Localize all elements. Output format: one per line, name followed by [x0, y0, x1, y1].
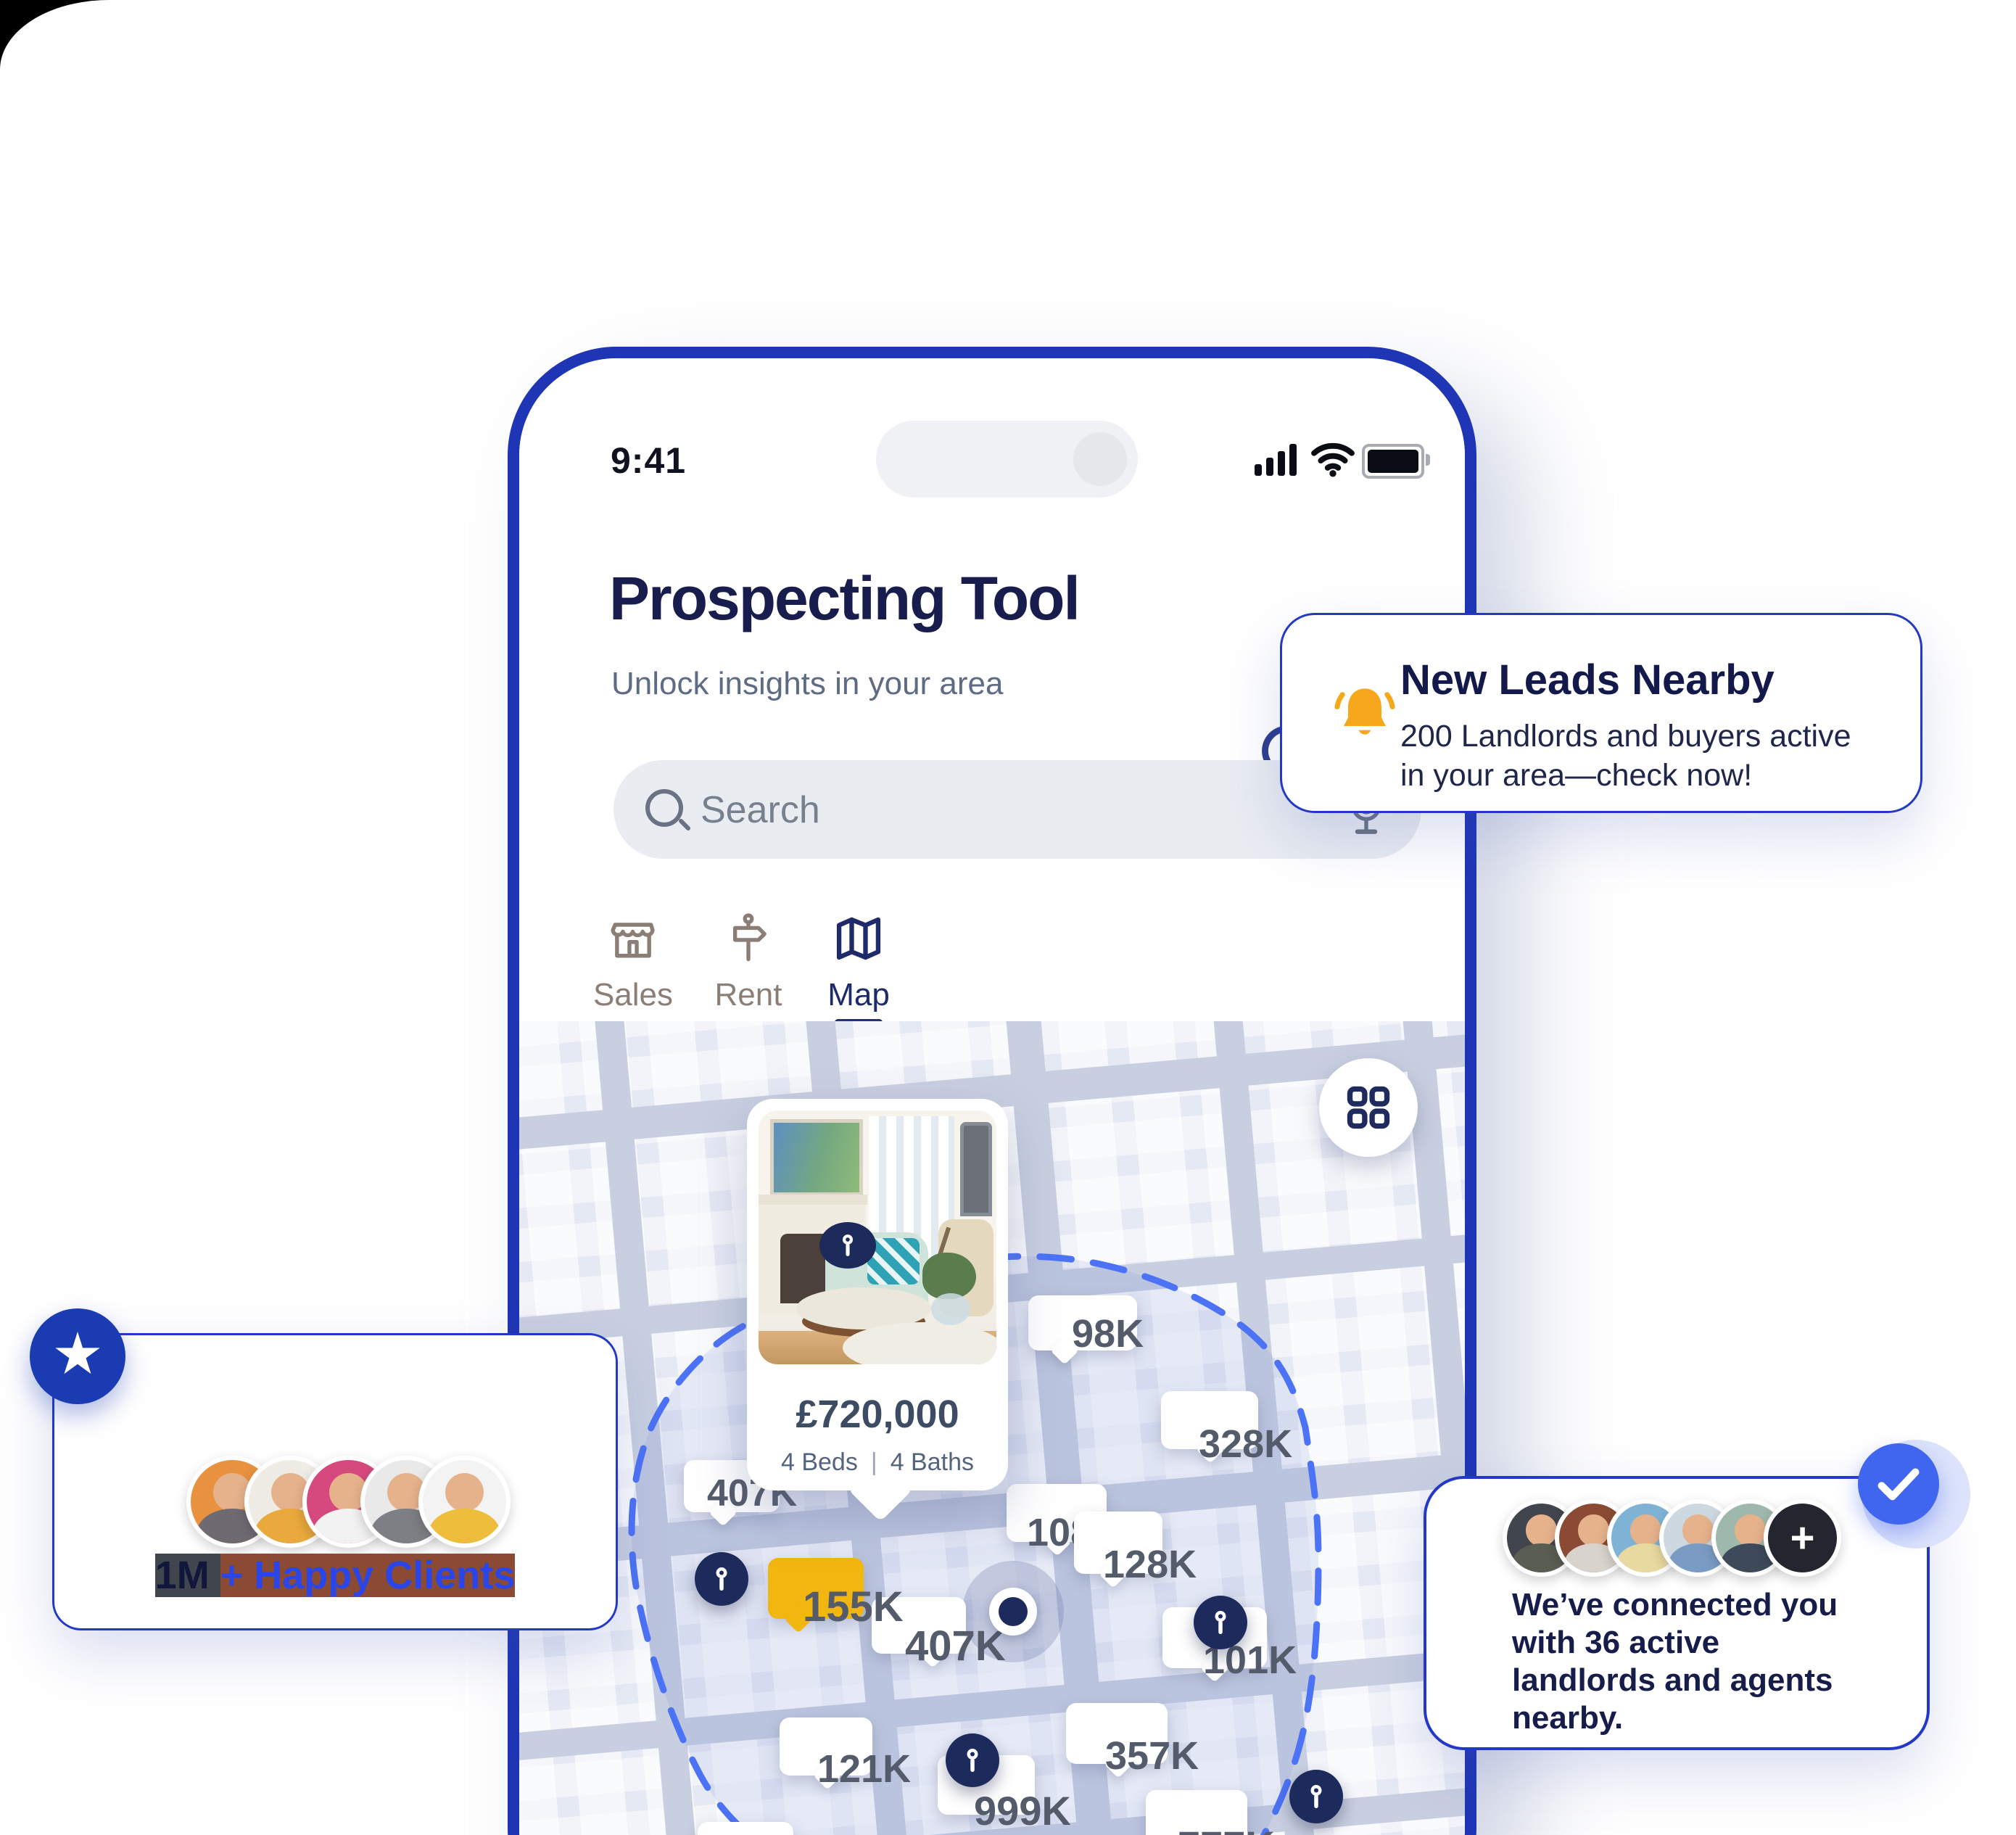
status-time: 9:41	[611, 440, 686, 482]
new-leads-notification[interactable]: New Leads Nearby 200 Landlords and buyer…	[1280, 613, 1922, 813]
connected-card: + We’ve connected you with 36 active lan…	[1424, 1476, 1930, 1750]
star-icon	[54, 1332, 101, 1378]
agent-avatars: +	[1426, 1499, 1927, 1572]
star-badge	[30, 1308, 125, 1404]
check-badge	[1858, 1443, 1939, 1525]
tab-rent-label: Rent	[694, 977, 803, 1013]
connected-text: We’ve connected you with 36 active landl…	[1512, 1586, 1860, 1737]
bell-icon	[1327, 679, 1402, 758]
check-icon	[1858, 1443, 1939, 1525]
location-dot	[999, 1597, 1028, 1626]
property-price: £720,000	[747, 1392, 1008, 1437]
signpost-icon	[721, 957, 776, 969]
avatar-more[interactable]: +	[1764, 1499, 1841, 1577]
tab-sales[interactable]: Sales	[579, 911, 687, 1013]
grid-view-button[interactable]	[1319, 1058, 1418, 1157]
happy-clients-card: 1M + Happy Clients	[52, 1333, 618, 1630]
wifi-icon	[1310, 440, 1356, 481]
key-pin-icon	[946, 1733, 999, 1787]
tab-rent[interactable]: Rent	[694, 911, 803, 1013]
property-card[interactable]: £720,000 4 Beds|4 Baths	[747, 1099, 1008, 1490]
new-leads-title: New Leads Nearby	[1400, 656, 1775, 704]
signal-icon	[1255, 444, 1297, 476]
beds-value: 4 Beds	[781, 1448, 858, 1476]
page-title: Prospecting Tool	[609, 564, 1079, 634]
page-subtitle: Unlock insights in your area	[611, 666, 1003, 702]
tab-map[interactable]: Map	[804, 911, 913, 1026]
key-pin-icon[interactable]	[1194, 1596, 1247, 1649]
tab-map-label: Map	[804, 977, 913, 1013]
map-icon	[831, 957, 886, 969]
map-canvas[interactable]: 98K 328K 108K 128K 101K	[519, 1021, 1465, 1835]
client-avatars	[54, 1456, 616, 1543]
phone-screen: 9:41 Prospecting Tool Unlock insights in…	[519, 358, 1465, 1835]
page: 9:41 Prospecting Tool Unlock insights in…	[0, 0, 2016, 1835]
property-photo	[759, 1110, 996, 1364]
camera-dot	[1073, 432, 1127, 486]
storefront-icon	[606, 957, 661, 969]
clients-count: 1M	[155, 1554, 220, 1597]
grid-icon	[1344, 1083, 1393, 1132]
key-pin-icon[interactable]	[1289, 1770, 1343, 1823]
property-meta: 4 Beds|4 Baths	[747, 1448, 1008, 1477]
search-input[interactable]	[699, 760, 1297, 860]
new-leads-body: 200 Landlords and buyers active in your …	[1400, 717, 1879, 795]
avatar	[418, 1456, 511, 1548]
baths-value: 4 Baths	[891, 1448, 974, 1476]
search-icon	[645, 789, 683, 827]
key-pin-icon	[819, 1222, 876, 1269]
dynamic-island	[876, 421, 1138, 498]
plus-icon: +	[1790, 1514, 1815, 1562]
key-pin-icon[interactable]	[695, 1552, 748, 1606]
happy-clients-text: 1M + Happy Clients	[54, 1553, 616, 1598]
meta-separator: |	[871, 1448, 877, 1476]
tab-sales-label: Sales	[579, 977, 687, 1013]
clients-label: + Happy Clients	[220, 1554, 516, 1597]
phone-mockup: 9:41 Prospecting Tool Unlock insights in…	[508, 347, 1476, 1835]
battery-icon	[1362, 444, 1424, 479]
